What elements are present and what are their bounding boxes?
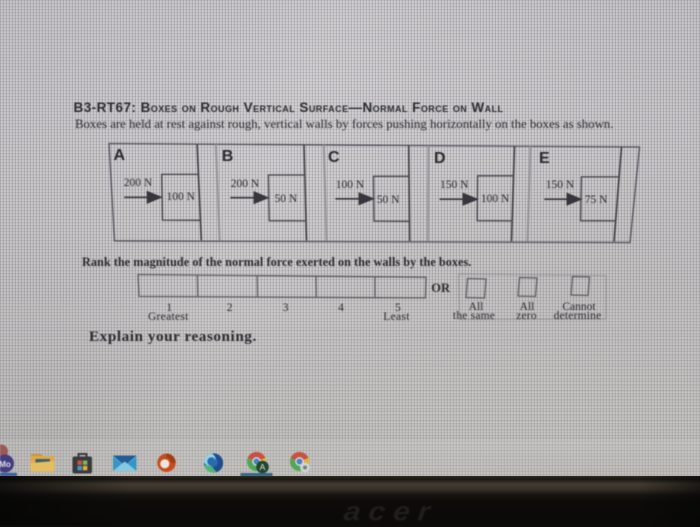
svg-text:A: A [260, 462, 266, 472]
svg-text:Mo: Mo [0, 460, 11, 469]
